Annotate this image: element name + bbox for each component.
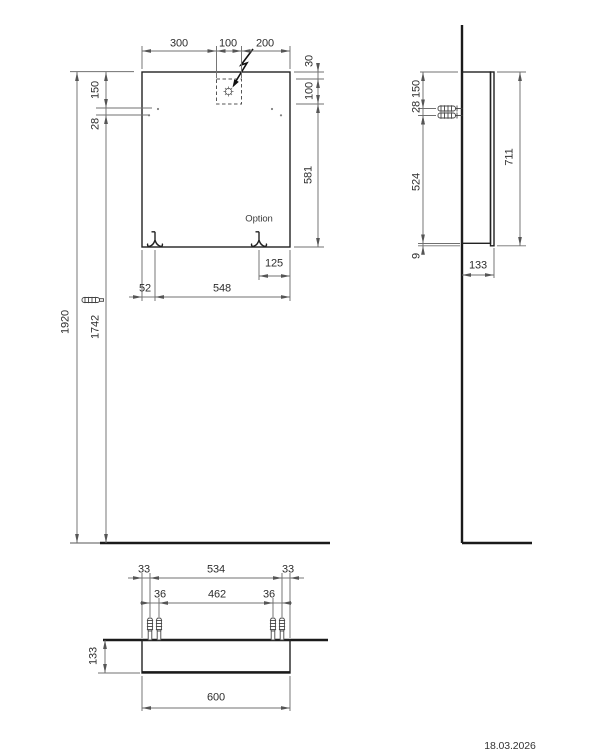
wall-screw-icon xyxy=(438,105,463,111)
dim-side-524: 524 xyxy=(412,173,423,191)
dim-front-right-100: 100 xyxy=(305,82,316,100)
mount-hole xyxy=(157,108,159,110)
dim-front-bottom-125: 125 xyxy=(265,259,283,270)
dim-side-28: 28 xyxy=(412,101,423,113)
electrical-outlet-icon xyxy=(224,87,234,97)
dim-front-width-300: 300 xyxy=(170,39,188,50)
dim-front-right-581: 581 xyxy=(304,166,315,184)
dim-front-bottom-52: 52 xyxy=(139,284,151,295)
hanger-bolt-icon xyxy=(147,618,153,640)
dim-front-left-28: 28 xyxy=(91,118,102,130)
dim-side-711: 711 xyxy=(505,148,516,165)
dim-front-height-1920: 1920 xyxy=(61,310,72,334)
front-extension-lines xyxy=(70,46,324,301)
hanger-bolt-icon xyxy=(279,618,285,640)
wall-screw-icon xyxy=(438,112,463,118)
dim-front-height-1742: 1742 xyxy=(91,315,102,339)
dim-plan-600: 600 xyxy=(207,693,225,704)
dim-side-150: 150 xyxy=(412,80,423,98)
lightning-arrow-icon xyxy=(233,49,254,88)
towel-hook-left-icon xyxy=(148,232,163,247)
front-dimension-lines xyxy=(77,51,318,543)
side-extension-lines xyxy=(418,72,526,278)
side-view xyxy=(418,25,532,543)
dim-front-width-200: 200 xyxy=(256,39,274,50)
dim-front-bottom-548: 548 xyxy=(213,284,231,295)
dim-front-right-30: 30 xyxy=(305,55,316,67)
towel-hook-option-icon xyxy=(252,232,267,247)
dim-plan-36-left: 36 xyxy=(154,590,166,601)
dim-front-width-100: 100 xyxy=(219,39,237,50)
dim-plan-462: 462 xyxy=(208,590,226,601)
dim-plan-534: 534 xyxy=(207,565,225,576)
dim-plan-33-left: 33 xyxy=(138,565,150,576)
side-front-panel xyxy=(491,72,495,246)
mount-hole xyxy=(280,114,282,116)
dim-plan-33-right: 33 xyxy=(282,565,294,576)
option-label: Option xyxy=(245,214,272,224)
side-cabinet-body xyxy=(462,72,491,243)
drawing-canvas xyxy=(0,0,600,752)
wall-anchor-icon xyxy=(82,297,104,303)
dim-plan-36-right: 36 xyxy=(263,590,275,601)
front-view xyxy=(70,46,330,543)
hanger-bolt-icon xyxy=(156,618,162,640)
mount-hole xyxy=(271,108,273,110)
plan-extension-lines xyxy=(98,573,290,711)
dim-front-left-150: 150 xyxy=(91,81,102,99)
date-stamp: 18.03.2026 xyxy=(484,741,536,752)
dim-side-9: 9 xyxy=(412,253,423,259)
plan-cabinet-body xyxy=(142,640,290,673)
hanger-bolt-icon xyxy=(270,618,276,640)
side-dimension-lines xyxy=(423,72,520,275)
drawing-sheet: 300 100 200 30 100 581 150 28 1920 1742 … xyxy=(0,0,600,752)
dim-plan-133: 133 xyxy=(89,647,100,665)
dim-side-133: 133 xyxy=(469,261,487,272)
